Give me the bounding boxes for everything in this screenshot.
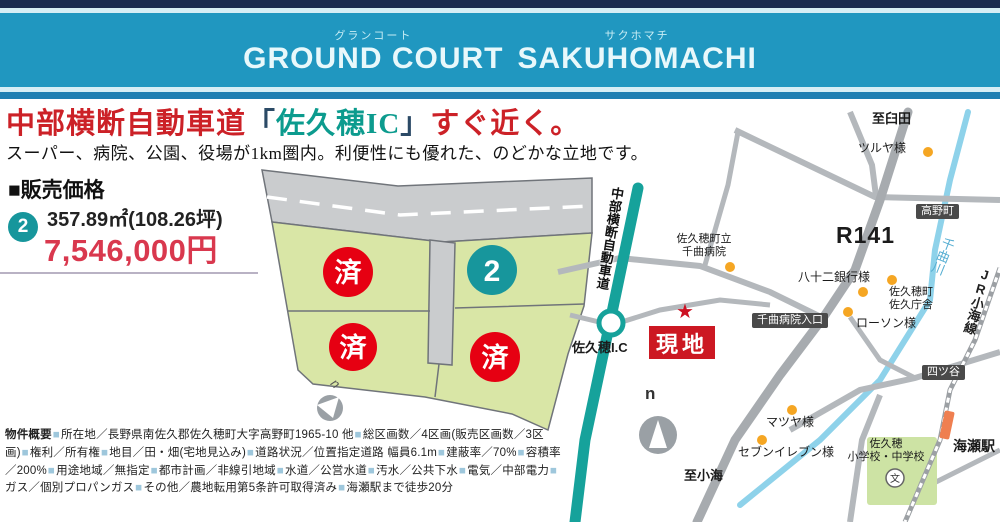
map-label-bank: 八十二銀行様 [798, 271, 870, 285]
property-item: 汚水／公共下水 [376, 465, 458, 477]
flyer-page: グランコート GROUND COURT サクホマチ SAKUHOMACHI 中部… [0, 0, 1000, 522]
header-band: グランコート GROUND COURT サクホマチ SAKUHOMACHI [0, 13, 1000, 87]
bullet-icon: ■ [438, 447, 445, 459]
map-label-to-usuda: 至臼田 [872, 112, 911, 127]
map-label-tsuruya: ツルヤ様 [858, 142, 906, 156]
map-label-matsuya: マツヤ様 [766, 416, 814, 430]
site-marker: 現地 [649, 326, 715, 359]
headline: 中部横断自動車道「佐久穂IC」すぐ近く。 [6, 100, 580, 142]
price-section-title: ■販売価格 [8, 174, 105, 204]
property-item: 水道／公営水道 [285, 465, 367, 477]
property-item: 道路状況／位置指定道路 幅員6.1m [255, 447, 437, 459]
bullet-icon: ■ [22, 447, 29, 459]
map-label-yotsuya: 四ツ谷 [922, 365, 965, 380]
sold-label-2: 済 [340, 332, 368, 363]
map-label-to-koumi: 至小海 [684, 469, 723, 484]
title-left: GROUND COURT [243, 44, 503, 74]
bullet-icon: ■ [518, 447, 525, 459]
property-item: 所在地／長野県南佐久郡佐久穂町大字高野町1965-10 他 [61, 429, 354, 441]
map-label-town-office-line1: 佐久穂町 [880, 286, 942, 299]
header-top-bar [0, 0, 1000, 8]
map-label-town-office-line2: 佐久庁舎 [880, 299, 942, 312]
property-lead: 物件概要 [5, 429, 52, 441]
bullet-icon: ■ [338, 482, 345, 494]
map-label-school-line1: 佐久穂 [840, 438, 932, 451]
project-title: グランコート GROUND COURT サクホマチ SAKUHOMACHI [243, 27, 757, 74]
map-label-r141: R141 [836, 222, 895, 248]
bullet-icon: ■ [277, 465, 284, 477]
header-bottom-bar [0, 92, 1000, 99]
bullet-icon: ■ [151, 465, 158, 477]
poi-dot-hospital [725, 262, 735, 272]
available-lot-number: 2 [484, 255, 501, 288]
bullet-icon: ■ [355, 429, 362, 441]
headline-pre: 中部横断自動車道 [6, 108, 246, 140]
interchange-icon [599, 311, 623, 335]
site-driveway [428, 240, 455, 365]
site-plan: 済 2 済 済 [250, 158, 595, 435]
map-label-lawson: ローソン様 [856, 317, 916, 331]
map-label-hospital-line1: 佐久穂町立 [668, 233, 740, 246]
headline-bracket-open: 「 [246, 108, 276, 140]
bullet-icon: ■ [368, 465, 375, 477]
map-label-hospital: 佐久穂町立 千曲病院 [668, 233, 740, 258]
poi-dot-lawson [843, 307, 853, 317]
map-label-seven-eleven: セブンイレブン様 [738, 446, 834, 460]
poi-dot-town-office [887, 275, 897, 285]
property-item: その他／農地転用第5条許可取得済み [143, 482, 337, 494]
map-compass-n: n [645, 384, 655, 404]
site-star-icon: ★ [676, 299, 694, 324]
lot-price: 7,546,000円 [44, 225, 218, 270]
school-symbol-text: 文 [890, 472, 900, 485]
poi-dot-seven-eleven [757, 435, 767, 445]
poi-dot-bank [858, 287, 868, 297]
property-item: ガス／個別プロパンガス [5, 482, 134, 494]
poi-dot-matsuya [787, 405, 797, 415]
property-item: 用途地域／無指定 [56, 465, 150, 477]
property-item: 海瀬駅まで徒歩20分 [346, 482, 453, 494]
map-label-kaize-station: 海瀬駅 [953, 438, 995, 454]
bullet-icon: ■ [135, 482, 142, 494]
road-yotsuya [790, 352, 1000, 430]
headline-highlight: 佐久穂IC [276, 108, 400, 140]
bullet-icon: ■ [247, 447, 254, 459]
price-divider [0, 272, 258, 274]
title-right: SAKUHOMACHI [518, 44, 757, 74]
map-label-hospital-line2: 千曲病院 [668, 246, 740, 259]
headline-bracket-close: 」 [400, 108, 430, 140]
sold-label-1: 済 [335, 257, 363, 288]
property-item: 権利／所有権 [30, 447, 100, 459]
map-label-takanomachi: 高野町 [916, 204, 959, 219]
property-item: 建蔽率／70% [446, 447, 516, 459]
property-item: 電気／中部電力 [467, 465, 549, 477]
lot-number-badge: 2 [8, 212, 38, 242]
map-label-town-office: 佐久穂町 佐久庁舎 [880, 286, 942, 311]
bullet-icon: ■ [48, 465, 55, 477]
bullet-icon: ■ [459, 465, 466, 477]
title-furigana-right: サクホマチ [605, 27, 670, 43]
sold-label-3: 済 [482, 342, 510, 373]
property-item: 都市計画／非線引地域 [159, 465, 276, 477]
map-label-school-line2: 小学校・中学校 [840, 451, 932, 464]
bullet-icon: ■ [550, 465, 557, 477]
title-furigana-left: グランコート [334, 27, 412, 43]
map-label-hospital-entrance: 千曲病院入口 [752, 313, 828, 328]
map-label-sakuho-ic: 佐久穂I.C [572, 341, 628, 356]
map-label-school: 佐久穂 小学校・中学校 [840, 438, 932, 463]
bullet-icon: ■ [101, 447, 108, 459]
property-item: 地目／田・畑(宅地見込み) [109, 447, 246, 459]
poi-dot-tsuruya [923, 147, 933, 157]
property-overview: 物件概要■所在地／長野県南佐久郡佐久穂町大字高野町1965-10 他■総区画数／… [5, 427, 561, 498]
bullet-icon: ■ [53, 429, 60, 441]
